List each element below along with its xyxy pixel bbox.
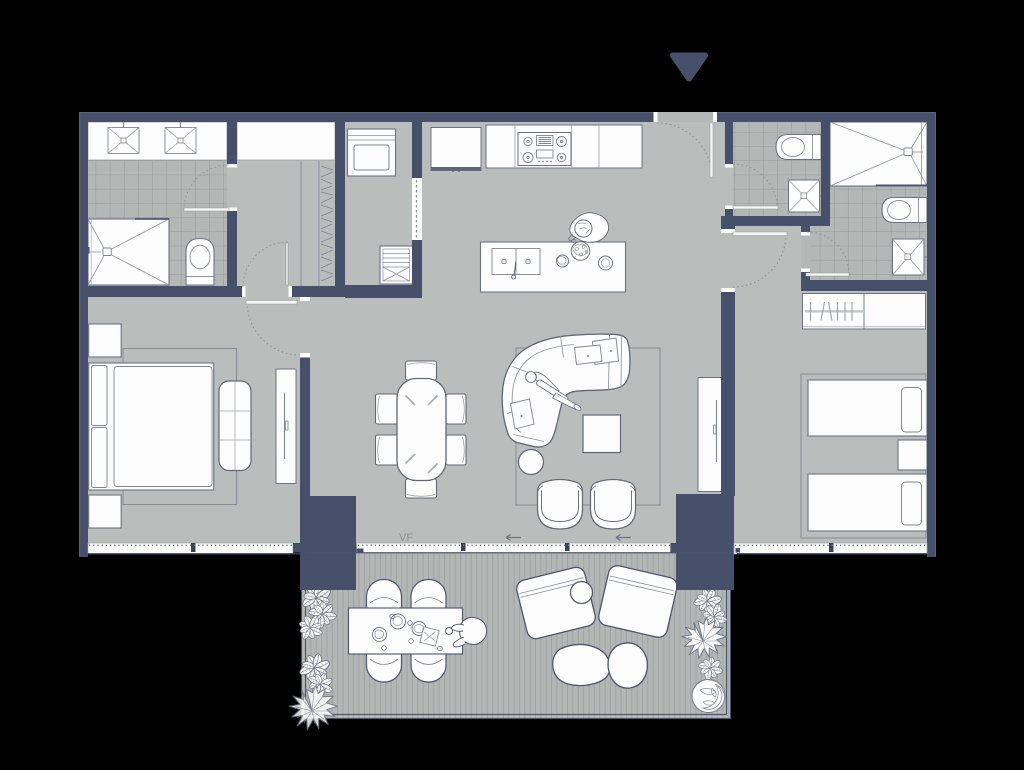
svg-text:VF: VF <box>399 532 413 544</box>
